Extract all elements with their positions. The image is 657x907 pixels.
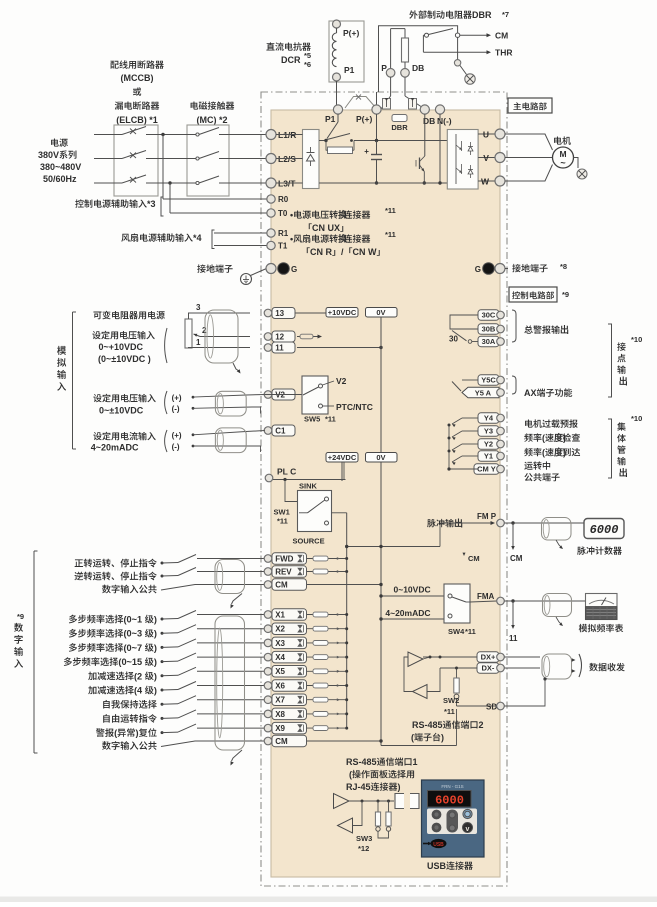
svg-text:*12: *12	[358, 844, 369, 853]
svg-text:(-): (-)	[172, 443, 180, 452]
svg-text:*10: *10	[631, 414, 642, 423]
svg-text:CM: CM	[275, 580, 288, 589]
svg-text:•: •	[290, 210, 293, 220]
svg-text:): )	[398, 782, 401, 792]
svg-text:): )	[154, 615, 157, 625]
svg-text:(: (	[411, 733, 414, 743]
svg-text:PL C: PL C	[277, 467, 296, 477]
svg-text:13: 13	[275, 309, 284, 318]
svg-text:(: (	[542, 448, 545, 458]
svg-text:CM Y: CM Y	[477, 465, 496, 474]
svg-text:(0~15: (0~15	[118, 657, 142, 667]
svg-text:): )	[154, 671, 157, 681]
svg-text:SW1: SW1	[274, 508, 290, 517]
svg-text:Y4: Y4	[484, 414, 494, 423]
svg-text:CN UX: CN UX	[312, 223, 340, 233]
svg-text:*11: *11	[325, 415, 336, 424]
svg-text:G: G	[475, 265, 481, 274]
svg-text:FM P: FM P	[477, 512, 497, 521]
svg-text:): )	[154, 629, 157, 639]
svg-text:THR: THR	[495, 48, 512, 58]
svg-text:DBR: DBR	[391, 123, 408, 132]
svg-text:CN R: CN R	[310, 247, 332, 257]
svg-text:30B: 30B	[482, 325, 496, 334]
svg-text:T0: T0	[278, 209, 288, 218]
svg-text:CN W: CN W	[353, 247, 377, 257]
svg-text:): )	[441, 733, 444, 743]
svg-text:度): 度)	[554, 447, 566, 458]
svg-text:RJ-45: RJ-45	[346, 782, 371, 792]
svg-text:SW5: SW5	[304, 415, 320, 424]
svg-text:(0~±10VDC ): (0~±10VDC )	[98, 354, 151, 364]
svg-text:(0~1: (0~1	[124, 615, 143, 625]
svg-text:X4: X4	[275, 653, 285, 662]
svg-text:+24VDC: +24VDC	[328, 453, 357, 462]
svg-text:P: P	[381, 63, 387, 73]
svg-text:SINK: SINK	[299, 482, 318, 491]
svg-text:(-): (-)	[172, 405, 180, 414]
svg-text:(: (	[349, 770, 352, 780]
svg-text:3: 3	[196, 303, 201, 312]
svg-text:RS-485: RS-485	[412, 720, 443, 730]
svg-text:DB: DB	[412, 63, 424, 73]
svg-text:380V: 380V	[38, 150, 59, 160]
svg-text:V2: V2	[336, 376, 347, 386]
svg-text:(2: (2	[134, 671, 142, 681]
svg-text:*11: *11	[277, 517, 288, 526]
svg-text:0~+10VDC: 0~+10VDC	[99, 342, 144, 352]
svg-text:30A: 30A	[482, 337, 496, 346]
svg-text:P(+): P(+)	[356, 114, 372, 124]
svg-text:X2: X2	[275, 625, 285, 634]
svg-text:*4: *4	[193, 233, 202, 243]
svg-text:P1: P1	[325, 114, 336, 124]
svg-text:): )	[154, 686, 157, 696]
svg-text:2: 2	[479, 720, 484, 730]
svg-text:CM: CM	[468, 554, 480, 563]
svg-text:1: 1	[196, 338, 201, 347]
svg-text:REV: REV	[275, 567, 292, 576]
svg-text:X3: X3	[275, 639, 285, 648]
svg-text:(MC) *2: (MC) *2	[197, 115, 228, 125]
svg-text:*11: *11	[444, 707, 455, 716]
svg-text:v: v	[466, 826, 470, 833]
svg-text:(+): (+)	[172, 394, 182, 403]
svg-text:Y3: Y3	[484, 427, 493, 436]
svg-text:CM: CM	[495, 31, 508, 41]
svg-text:V: V	[483, 153, 489, 163]
svg-text:*9: *9	[17, 612, 24, 621]
svg-text:SW4: SW4	[448, 627, 465, 636]
svg-text:PTC/NTC: PTC/NTC	[336, 402, 373, 412]
svg-text:50/60Hz: 50/60Hz	[43, 174, 77, 184]
svg-text:出: 出	[619, 376, 628, 387]
svg-text:4~20mADC: 4~20mADC	[385, 608, 430, 618]
svg-text:AX: AX	[524, 388, 537, 398]
svg-text:P(+): P(+)	[343, 28, 359, 38]
svg-text:11: 11	[509, 634, 518, 643]
svg-text:*8: *8	[560, 262, 567, 271]
svg-text:*11: *11	[385, 230, 396, 239]
svg-text:DX+: DX+	[481, 653, 496, 662]
svg-text:FRN - G1S: FRN - G1S	[441, 784, 463, 789]
svg-text:(: (	[542, 433, 545, 443]
svg-text:*10: *10	[631, 335, 642, 344]
svg-text:DCR: DCR	[281, 55, 301, 65]
svg-text:): )	[154, 657, 157, 667]
svg-text:12: 12	[275, 332, 284, 341]
svg-text:0~10VDC: 0~10VDC	[394, 585, 431, 595]
svg-text:*3: *3	[147, 199, 156, 209]
svg-text:0V: 0V	[376, 308, 385, 317]
svg-text:SOURCE: SOURCE	[293, 537, 325, 546]
svg-text:*11: *11	[385, 206, 396, 215]
svg-text:CM: CM	[275, 737, 288, 746]
svg-text:换: 换	[338, 209, 348, 220]
svg-text:R0: R0	[278, 195, 289, 204]
svg-text:*11: *11	[465, 627, 476, 636]
svg-text:): )	[154, 643, 157, 653]
svg-text:(0~3: (0~3	[124, 629, 143, 639]
svg-text:U: U	[483, 130, 489, 140]
svg-text:DX-: DX-	[482, 664, 495, 673]
svg-text:30C: 30C	[482, 311, 496, 320]
svg-text:N(-): N(-)	[437, 116, 452, 126]
svg-text:): )	[136, 728, 139, 738]
svg-text:换: 换	[338, 233, 348, 244]
svg-text:1: 1	[413, 757, 418, 767]
svg-text:*9: *9	[562, 290, 569, 299]
svg-text:+10VDC: +10VDC	[328, 308, 357, 317]
svg-text:SW3: SW3	[356, 834, 372, 843]
svg-text:SW2: SW2	[443, 696, 459, 705]
svg-text:SD: SD	[486, 703, 497, 712]
svg-text:•: •	[290, 234, 293, 244]
svg-text:(0~7: (0~7	[124, 643, 143, 653]
svg-text:Y5C: Y5C	[481, 376, 496, 385]
svg-text:*5: *5	[304, 51, 311, 60]
svg-text:380~480V: 380~480V	[40, 162, 81, 172]
svg-text:(4: (4	[134, 686, 143, 696]
svg-text:Y1: Y1	[484, 452, 493, 461]
svg-text:~: ~	[560, 158, 565, 168]
svg-text:T1: T1	[278, 242, 288, 251]
svg-text:0V: 0V	[376, 453, 385, 462]
svg-text:0~±10VDC: 0~±10VDC	[99, 406, 144, 416]
svg-text:(ELCB) *1: (ELCB) *1	[116, 115, 158, 125]
svg-text:CM: CM	[510, 554, 523, 563]
svg-text:4~20mADC: 4~20mADC	[91, 443, 139, 453]
svg-text:Y2: Y2	[484, 440, 493, 449]
svg-text:C1: C1	[275, 426, 286, 435]
svg-text:*7: *7	[502, 10, 509, 19]
svg-text:30: 30	[449, 335, 458, 344]
svg-text:X8: X8	[275, 710, 285, 719]
svg-text:X7: X7	[275, 696, 285, 705]
svg-text:FMA: FMA	[477, 592, 495, 601]
svg-text:USB: USB	[433, 842, 444, 848]
svg-text:出: 出	[619, 467, 628, 478]
svg-text:X9: X9	[275, 724, 285, 733]
svg-text:(+): (+)	[172, 431, 182, 440]
svg-text:X1: X1	[275, 610, 285, 619]
svg-text:11: 11	[275, 343, 284, 352]
svg-text:P1: P1	[344, 65, 355, 75]
svg-text:Y5 A: Y5 A	[475, 389, 492, 398]
svg-text:DBR: DBR	[472, 10, 492, 20]
svg-text:W: W	[481, 177, 490, 187]
svg-text:6000: 6000	[435, 794, 464, 808]
svg-text:(MCCB): (MCCB)	[121, 73, 154, 83]
svg-text:+: +	[364, 147, 369, 156]
svg-text:X5: X5	[275, 667, 285, 676]
svg-text:*6: *6	[304, 60, 311, 69]
svg-text:出: 出	[560, 324, 569, 335]
svg-text:FWD: FWD	[275, 554, 293, 563]
svg-text:G: G	[291, 265, 297, 274]
svg-text:X6: X6	[275, 681, 285, 690]
svg-text:R1: R1	[278, 229, 289, 238]
svg-text:6000: 6000	[590, 523, 619, 537]
svg-text:RS-485: RS-485	[346, 757, 377, 767]
svg-text:USB: USB	[427, 861, 447, 871]
